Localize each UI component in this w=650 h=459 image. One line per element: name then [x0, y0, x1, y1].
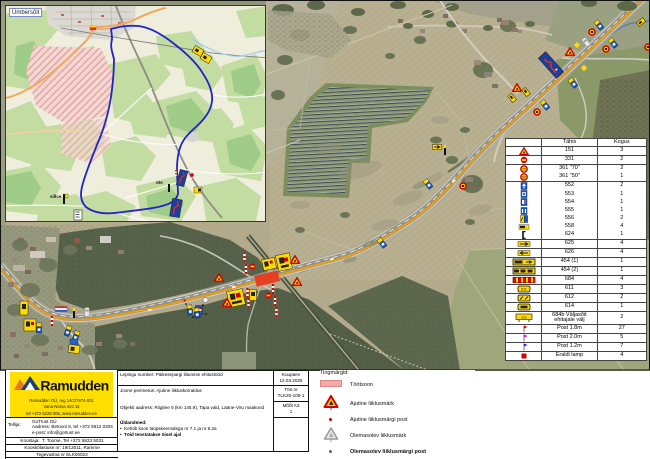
svg-text:611: 611: [521, 288, 527, 292]
svg-text:50: 50: [522, 176, 526, 180]
svg-text:625: 625: [521, 316, 526, 320]
svg-text:70: 70: [522, 168, 526, 172]
svg-text:sillce: sillce: [50, 194, 62, 199]
svg-text:ote: ote: [156, 180, 163, 185]
